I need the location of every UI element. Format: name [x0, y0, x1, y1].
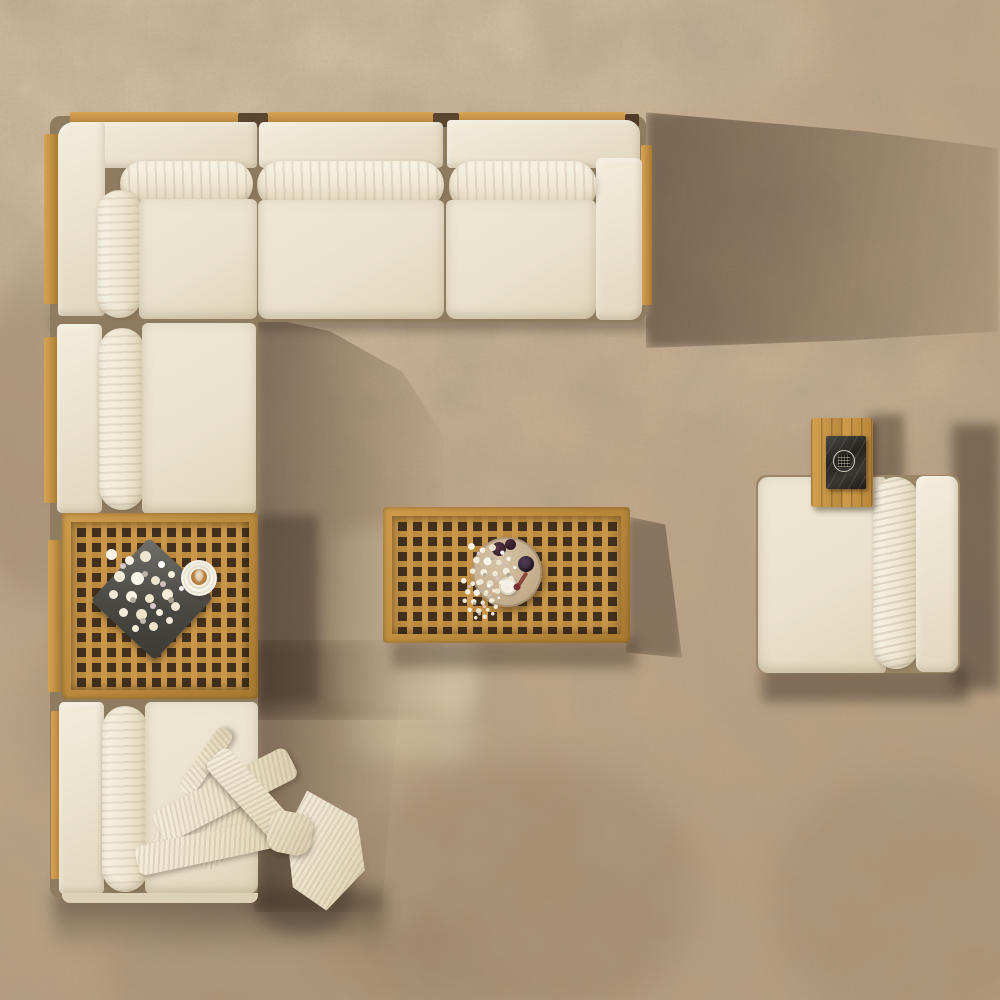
back-cushion: [97, 190, 142, 318]
seat-front-face: [62, 893, 258, 903]
chair-back-cushion: [916, 476, 958, 672]
teak-side-rail: [48, 540, 61, 692]
back-cushion: [99, 328, 145, 510]
back-pad: [59, 702, 104, 894]
table-shadow: [256, 515, 318, 703]
corner-seat-cushion: [139, 199, 257, 319]
seat-cushion: [446, 200, 596, 319]
chair-pillow: [873, 477, 919, 669]
sofa-shadow: [646, 110, 998, 348]
seat-cushion: [142, 323, 256, 514]
right-armrest: [596, 158, 642, 320]
flower-sprig: [468, 543, 505, 580]
flower-sprig: [461, 578, 486, 598]
teak-side-rail: [44, 134, 58, 304]
scene-photo: [0, 0, 1000, 1000]
teak-side-rail: [641, 145, 652, 305]
latte-cup: [187, 565, 211, 589]
emblem-ring-icon: [833, 450, 855, 472]
plum: [505, 539, 516, 550]
floor-patch: [290, 0, 810, 110]
teak-side-rail: [44, 337, 58, 503]
worn-floor-light-patch: [348, 695, 473, 760]
berry-bowl: [518, 556, 534, 572]
back-pad: [57, 324, 102, 513]
seat-cushion: [258, 200, 444, 319]
floor-patch: [775, 775, 1000, 1000]
table-shadow: [626, 516, 682, 658]
